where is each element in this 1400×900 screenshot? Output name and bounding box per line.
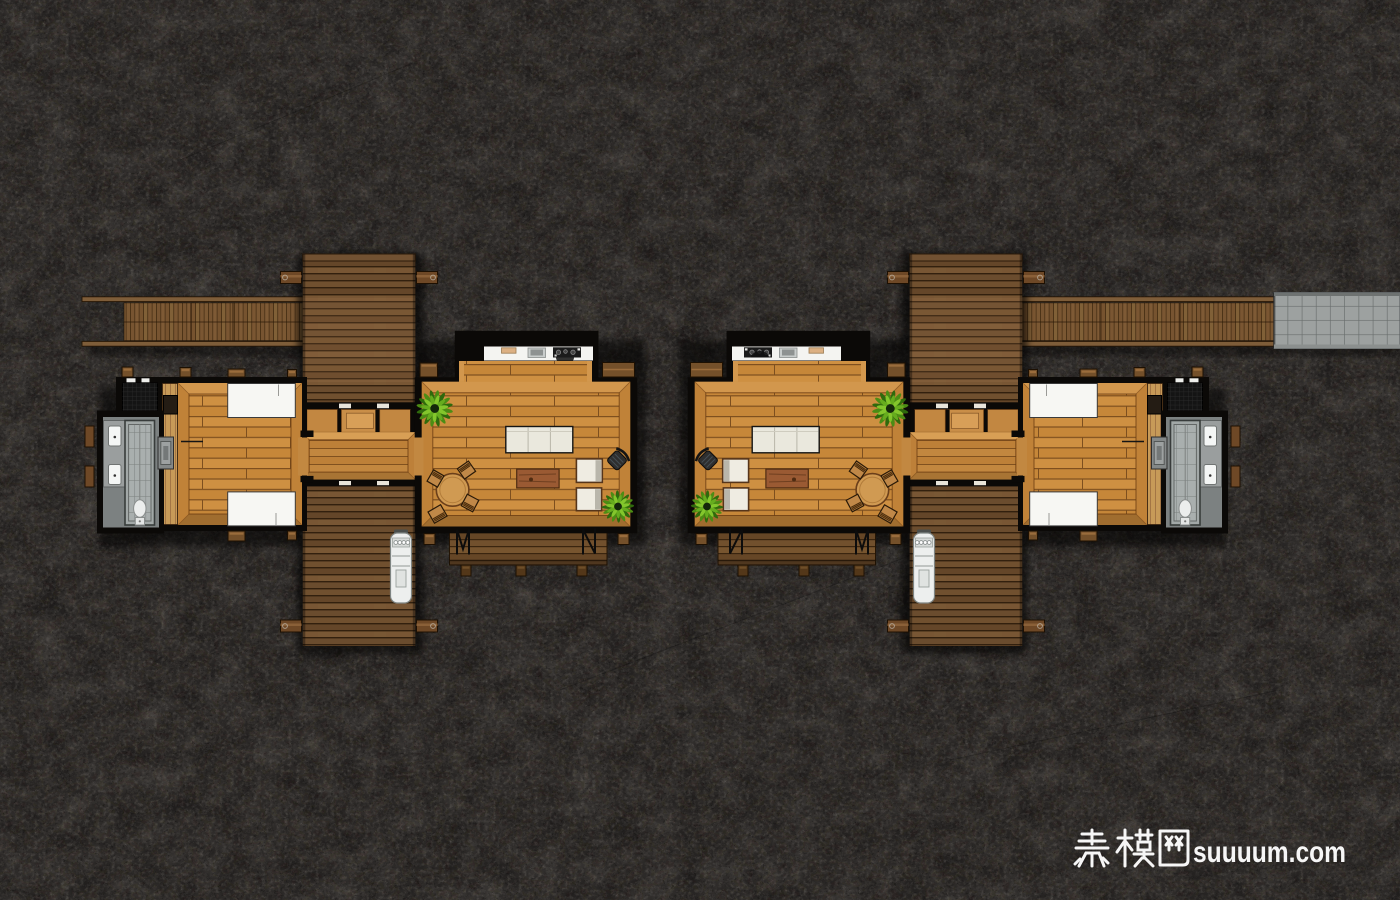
svg-text:suuuum.com: suuuum.com [1193,836,1346,869]
